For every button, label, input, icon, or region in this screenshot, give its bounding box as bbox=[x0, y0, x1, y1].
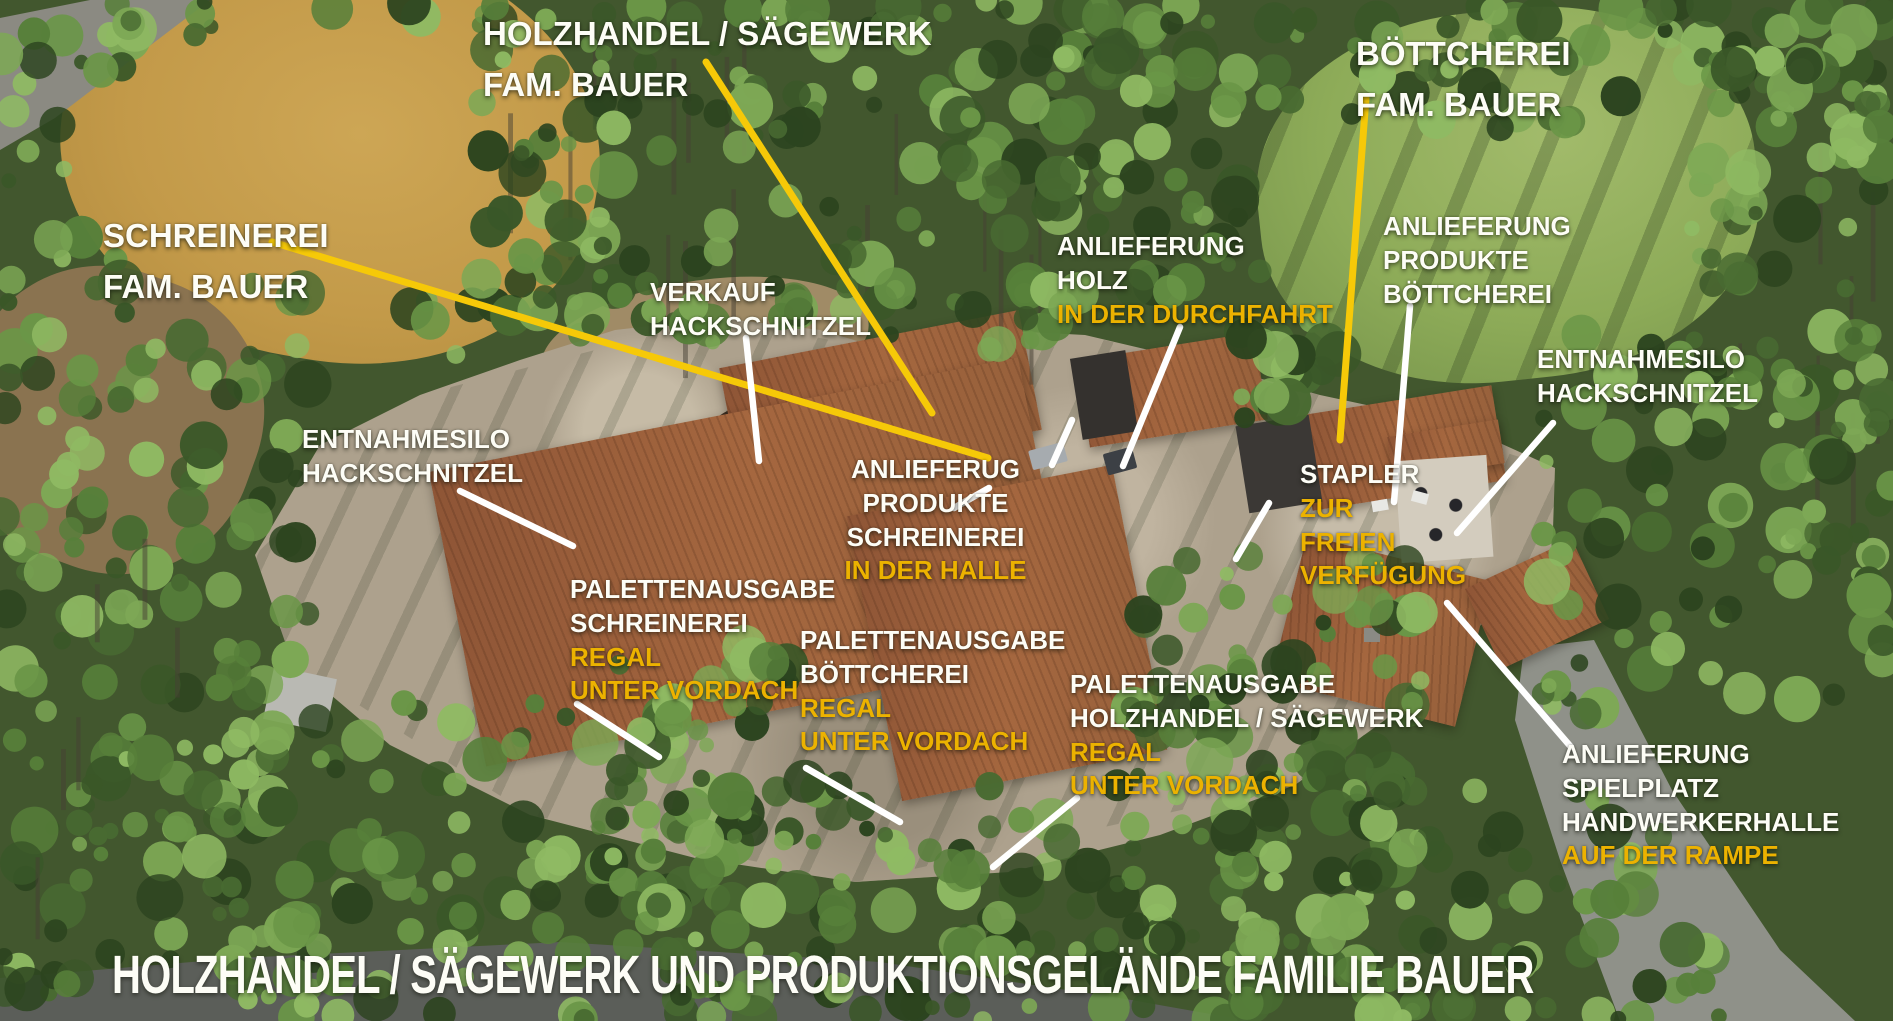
label-line: ENTNAHMESILO bbox=[302, 423, 523, 457]
label-line: ENTNAHMESILO bbox=[1537, 343, 1758, 377]
label-anlieferung-produkte-boettcherei: ANLIEFERUNG PRODUKTE BÖTTCHEREI bbox=[1383, 210, 1571, 311]
label-line: VERKAUF bbox=[650, 276, 871, 310]
label-line: REGAL bbox=[570, 641, 835, 675]
label-entnahmesilo-hackschnitzel-left: ENTNAHMESILO HACKSCHNITZEL bbox=[302, 423, 523, 491]
label-line: REGAL bbox=[1070, 736, 1423, 770]
label-line: REGAL bbox=[800, 692, 1065, 726]
label-line: FAM. BAUER bbox=[1356, 79, 1571, 130]
label-line: HOLZHANDEL / SÄGEWERK bbox=[1070, 702, 1423, 736]
label-line: FAM. BAUER bbox=[483, 59, 932, 110]
label-line: HANDWERKERHALLE bbox=[1562, 806, 1839, 840]
label-line: IN DER DURCHFAHRT bbox=[1057, 298, 1333, 332]
label-line: PRODUKTE bbox=[843, 487, 1028, 521]
label-boettcherei-fam-bauer: BÖTTCHEREI FAM. BAUER bbox=[1356, 28, 1571, 130]
label-line: AUF DER RAMPE bbox=[1562, 839, 1839, 873]
label-holzhandel-saegewerk-fam-bauer: HOLZHANDEL / SÄGEWERK FAM. BAUER bbox=[483, 8, 932, 110]
label-line: STAPLER bbox=[1300, 458, 1466, 492]
label-line: HACKSCHNITZEL bbox=[650, 310, 871, 344]
label-verkauf-hackschnitzel: VERKAUF HACKSCHNITZEL bbox=[650, 276, 871, 344]
label-line: ANLIEFERUG bbox=[843, 453, 1028, 487]
label-anlieferung-holz: ANLIEFERUNG HOLZ IN DER DURCHFAHRT bbox=[1057, 230, 1333, 331]
label-entnahmesilo-hackschnitzel-right: ENTNAHMESILO HACKSCHNITZEL bbox=[1537, 343, 1758, 411]
label-line: FAM. BAUER bbox=[103, 261, 329, 312]
label-line: PALETTENAUSGABE bbox=[800, 624, 1065, 658]
label-line: HOLZ bbox=[1057, 264, 1333, 298]
label-line: ZUR bbox=[1300, 492, 1466, 526]
label-line: BÖTTCHEREI bbox=[1383, 278, 1571, 312]
label-anlieferung-spielplatz-handwerkerhalle: ANLIEFERUNG SPIELPLATZ HANDWERKERHALLE A… bbox=[1562, 738, 1839, 873]
label-line: IN DER HALLE bbox=[843, 554, 1028, 588]
label-line: UNTER VORDACH bbox=[800, 725, 1065, 759]
label-anlieferug-produkte-schreinerei: ANLIEFERUG PRODUKTE SCHREINEREI IN DER H… bbox=[843, 453, 1028, 588]
label-line: PALETTENAUSGABE bbox=[570, 573, 835, 607]
label-line: PRODUKTE bbox=[1383, 244, 1571, 278]
label-line: SPIELPLATZ bbox=[1562, 772, 1839, 806]
label-line: UNTER VORDACH bbox=[570, 674, 835, 708]
game-map-overview: HOLZHANDEL / SÄGEWERK FAM. BAUER BÖTTCHE… bbox=[0, 0, 1893, 1021]
chimney bbox=[1364, 628, 1380, 642]
label-palettenausgabe-boettcherei: PALETTENAUSGABE BÖTTCHEREI REGAL UNTER V… bbox=[800, 624, 1065, 759]
label-line: UNTER VORDACH bbox=[1070, 769, 1423, 803]
map-title: HOLZHANDEL / SÄGEWERK UND PRODUKTIONSGEL… bbox=[112, 944, 1534, 1006]
label-line: ANLIEFERUNG bbox=[1562, 738, 1839, 772]
label-line: SCHREINEREI bbox=[843, 521, 1028, 555]
label-line: ANLIEFERUNG bbox=[1383, 210, 1571, 244]
label-stapler: STAPLER ZUR FREIEN VERFÜGUNG bbox=[1300, 458, 1466, 593]
label-line: HACKSCHNITZEL bbox=[1537, 377, 1758, 411]
label-schreinerei-fam-bauer: SCHREINEREI FAM. BAUER bbox=[103, 210, 329, 312]
label-line: BÖTTCHEREI bbox=[1356, 28, 1571, 79]
label-palettenausgabe-schreinerei: PALETTENAUSGABE SCHREINEREI REGAL UNTER … bbox=[570, 573, 835, 708]
label-line: SCHREINEREI bbox=[103, 210, 329, 261]
label-line: SCHREINEREI bbox=[570, 607, 835, 641]
label-line: VERFÜGUNG bbox=[1300, 559, 1466, 593]
label-line: BÖTTCHEREI bbox=[800, 658, 1065, 692]
label-line: HACKSCHNITZEL bbox=[302, 457, 523, 491]
label-line: HOLZHANDEL / SÄGEWERK bbox=[483, 8, 932, 59]
label-palettenausgabe-holzhandel-saegewerk: PALETTENAUSGABE HOLZHANDEL / SÄGEWERK RE… bbox=[1070, 668, 1423, 803]
label-line: FREIEN bbox=[1300, 526, 1466, 560]
label-line: PALETTENAUSGABE bbox=[1070, 668, 1423, 702]
label-line: ANLIEFERUNG bbox=[1057, 230, 1333, 264]
